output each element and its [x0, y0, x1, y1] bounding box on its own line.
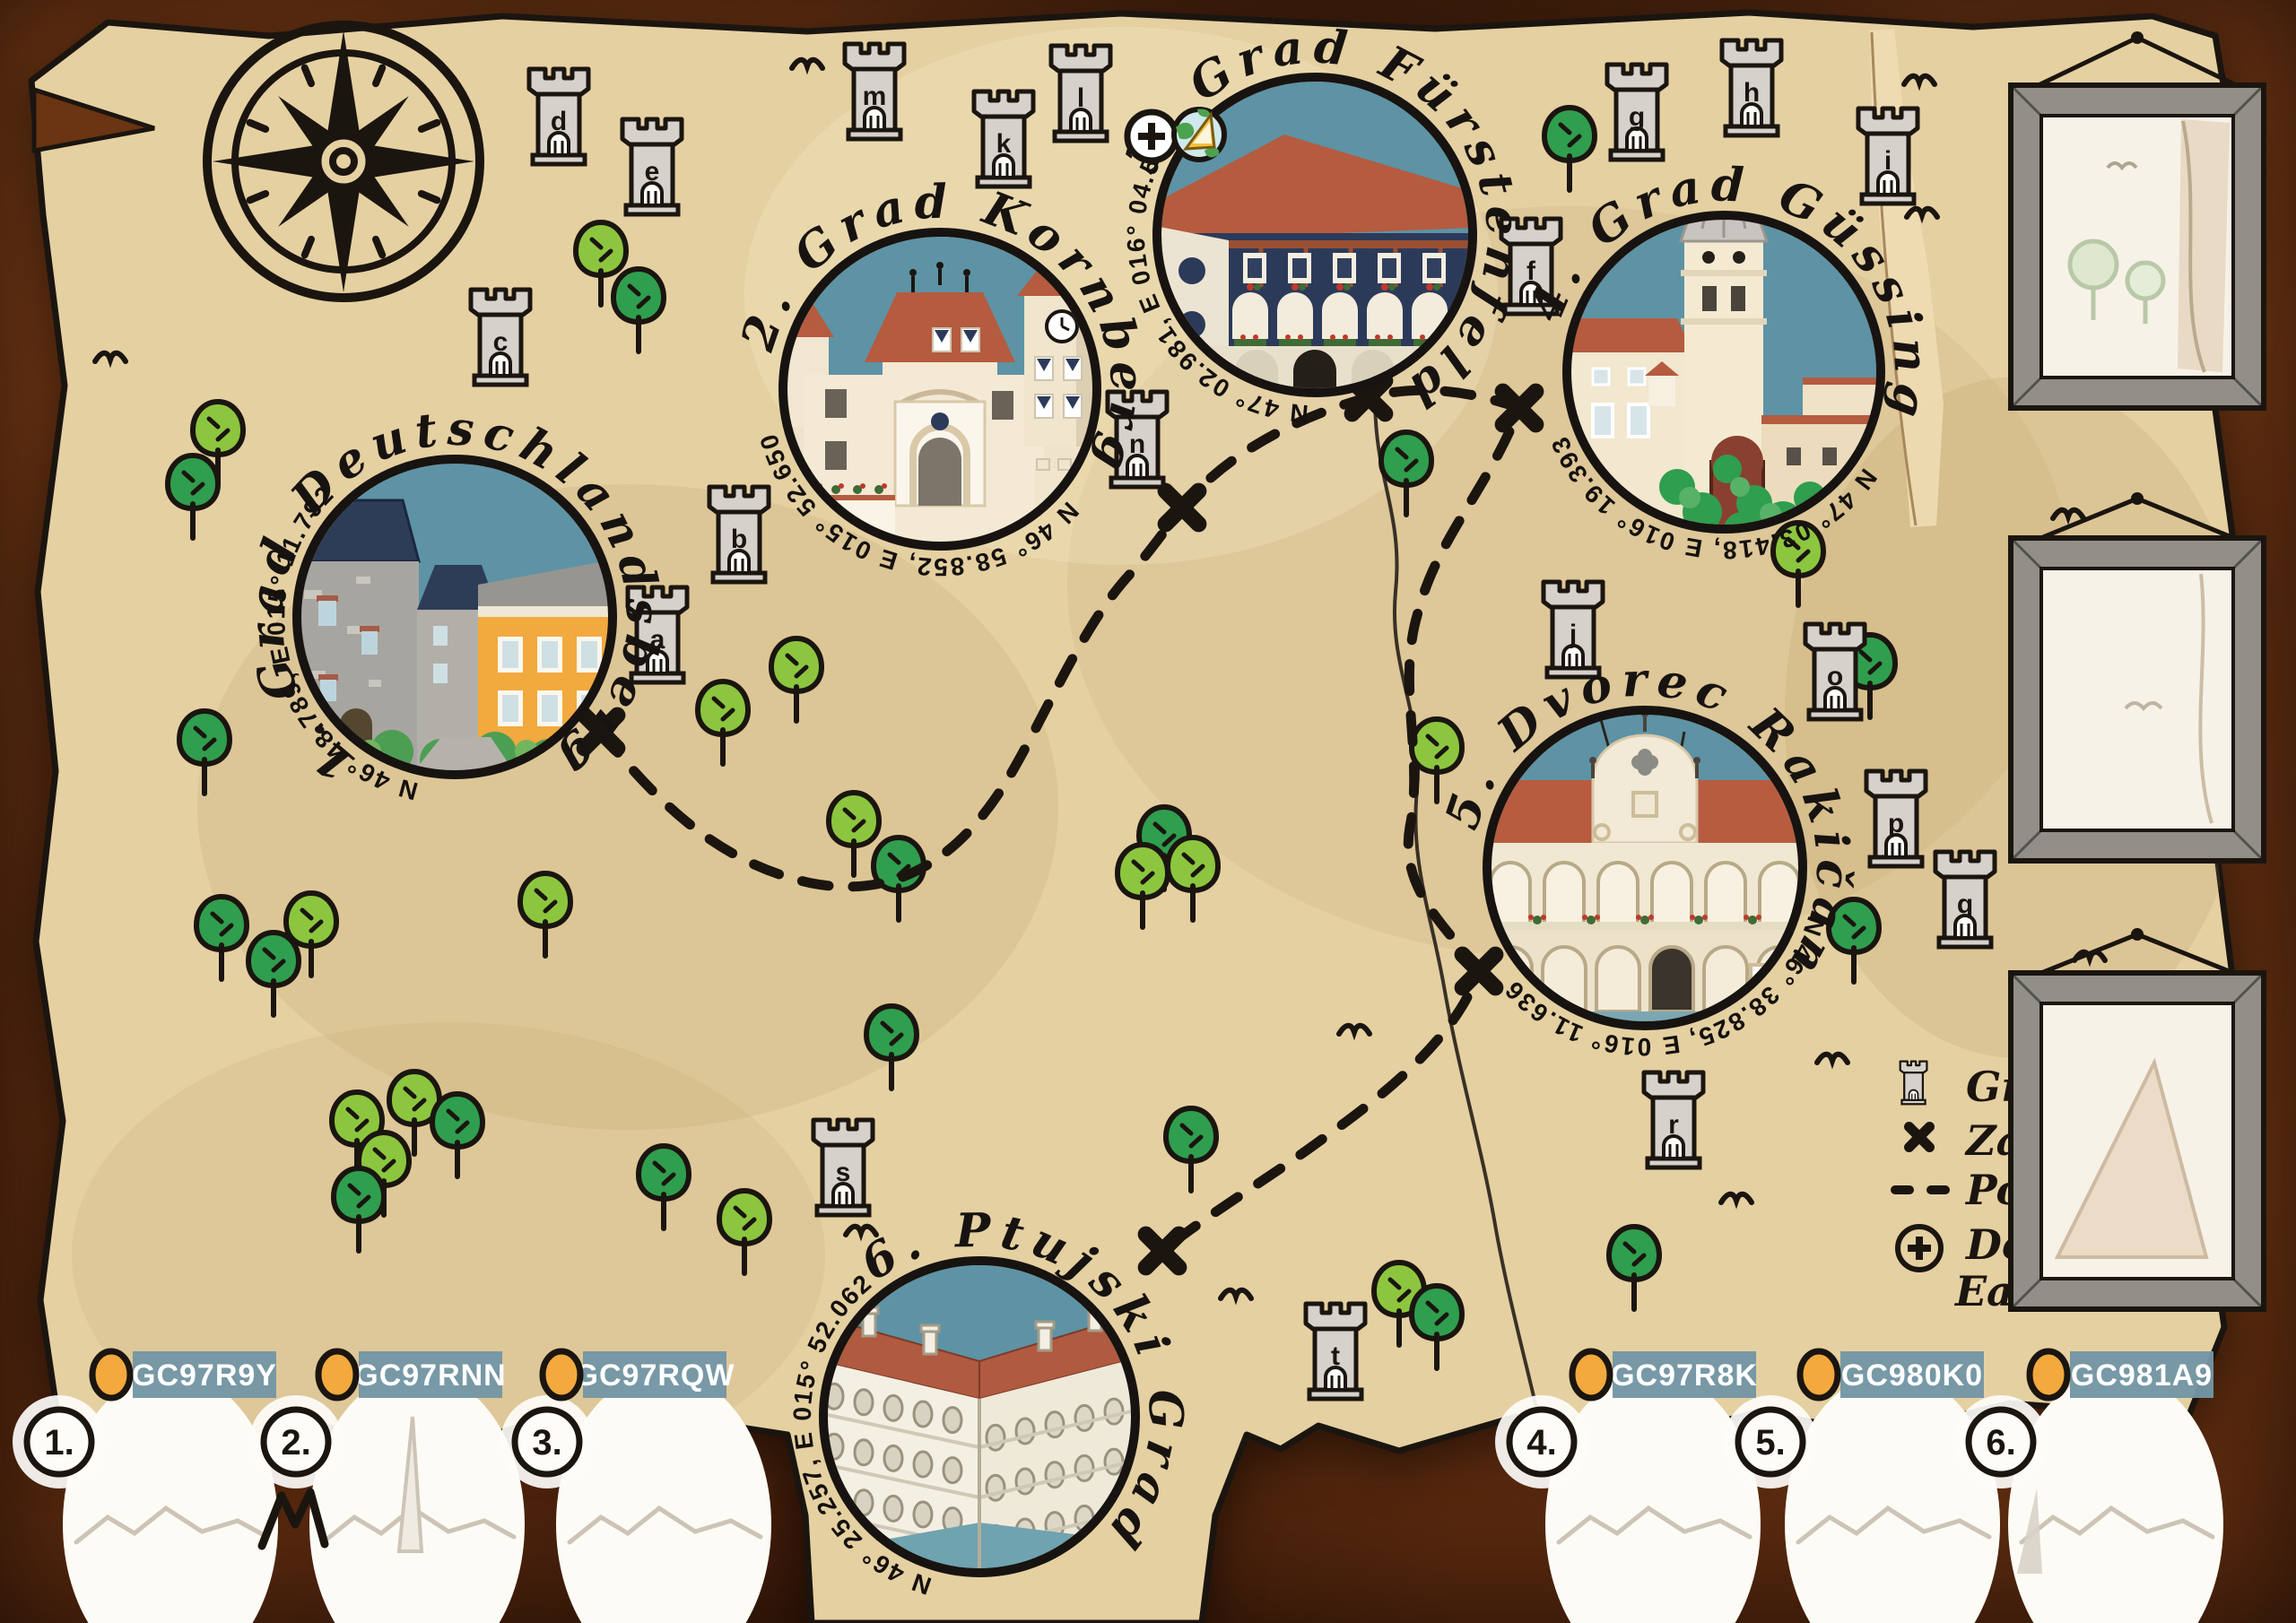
- svg-text:d: d: [551, 107, 567, 136]
- stamp-number-badge: 4.: [1495, 1395, 1588, 1488]
- castle-tower-marker-i: i: [1858, 108, 1918, 204]
- stamp-number-badge: 1.: [13, 1395, 106, 1488]
- geocache-dot-icon: [1800, 1351, 1838, 1398]
- svg-text:6.: 6.: [1986, 1423, 2015, 1462]
- geocache-dot-icon: [1572, 1351, 1610, 1398]
- svg-text:GC980K0: GC980K0: [1841, 1358, 1983, 1393]
- svg-text:q: q: [1957, 890, 1973, 919]
- svg-text:g: g: [1629, 102, 1645, 132]
- svg-text:GC97RQW: GC97RQW: [575, 1358, 735, 1393]
- picture-frame: [2011, 31, 2264, 408]
- geocache-code-label: GC981A9: [2030, 1351, 2213, 1398]
- svg-text:j: j: [1569, 620, 1577, 649]
- geocache-code-label: GC97RQW: [543, 1351, 735, 1398]
- castle-tower-marker-l: l: [1051, 46, 1110, 141]
- geocache-dot-icon: [92, 1351, 130, 1398]
- castle-tower-marker-b: b: [709, 487, 769, 582]
- castle-tower-marker-r: r: [1644, 1072, 1703, 1167]
- picture-frame: [2011, 928, 2264, 1309]
- svg-text:s: s: [836, 1158, 851, 1187]
- treasure-map-poster: abcdefghijklmnopqrst1.2.3.4.5.6.GC97R9YG…: [0, 0, 2296, 1623]
- stamp-number-badge: 2.: [249, 1395, 343, 1488]
- svg-text:i: i: [1884, 146, 1892, 176]
- castle-tower-marker-d: d: [529, 69, 588, 164]
- svg-text:o: o: [1827, 662, 1843, 691]
- svg-text:l: l: [1077, 83, 1084, 113]
- castle-tower-marker-s: s: [813, 1120, 873, 1215]
- geocache-dot-icon: [2030, 1351, 2067, 1398]
- castle-tower-marker-o: o: [1805, 624, 1865, 719]
- castle-tower-marker-p: p: [1866, 771, 1926, 866]
- svg-text:5.: 5.: [1755, 1423, 1785, 1462]
- geocache-code-label: GC97R8K: [1572, 1351, 1758, 1398]
- svg-text:GC981A9: GC981A9: [2071, 1358, 2213, 1393]
- geocache-dot-icon: [318, 1351, 356, 1398]
- geocache-code-label: GC97R9Y: [92, 1351, 277, 1398]
- stamp-number-badge: 5.: [1724, 1395, 1817, 1488]
- castle-tower-marker-e: e: [622, 119, 682, 214]
- svg-text:m: m: [863, 82, 887, 111]
- castle-treasure-map: abcdefghijklmnopqrst1.2.3.4.5.6.GC97R9YG…: [0, 0, 2296, 1623]
- svg-text:4.: 4.: [1526, 1423, 1556, 1462]
- svg-text:c: c: [493, 327, 509, 357]
- picture-frame: [2011, 492, 2264, 861]
- geocache-dot-icon: [543, 1351, 580, 1398]
- svg-text:GC97R8K: GC97R8K: [1611, 1358, 1758, 1393]
- svg-text:1.: 1.: [44, 1423, 74, 1462]
- castle-tower-marker-q: q: [1935, 852, 1995, 947]
- castle-tower-marker-m: m: [845, 44, 904, 139]
- earthcache-logo-icon: [1174, 108, 1224, 160]
- castle-tower-marker-g: g: [1607, 65, 1666, 160]
- castle-tower-marker-k: k: [974, 91, 1033, 187]
- geocache-code-label: GC97RNN: [318, 1351, 507, 1398]
- castle-tower-marker-h: h: [1722, 40, 1781, 135]
- earthcache-plus-icon: [1127, 112, 1176, 161]
- svg-text:GC97R9Y: GC97R9Y: [132, 1358, 277, 1393]
- compass-rose-icon: [207, 25, 480, 298]
- castle-tower-marker-c: c: [471, 290, 530, 385]
- legend-tower-icon: [1900, 1062, 1927, 1105]
- svg-text:k: k: [996, 129, 1012, 159]
- stamp-number-badge: 6.: [1954, 1395, 2048, 1488]
- svg-text:p: p: [1888, 809, 1904, 838]
- svg-text:t: t: [1331, 1341, 1340, 1371]
- svg-text:b: b: [731, 525, 747, 554]
- svg-text:e: e: [645, 157, 660, 187]
- svg-text:3.: 3.: [532, 1423, 561, 1462]
- svg-text:GC97RNN: GC97RNN: [354, 1358, 506, 1393]
- svg-text:r: r: [1668, 1110, 1679, 1140]
- svg-text:2.: 2.: [281, 1423, 310, 1462]
- stamp-number-badge: 3.: [500, 1395, 594, 1488]
- castle-tower-marker-t: t: [1306, 1304, 1365, 1399]
- geocache-code-label: GC980K0: [1800, 1351, 1984, 1398]
- svg-text:h: h: [1744, 78, 1760, 108]
